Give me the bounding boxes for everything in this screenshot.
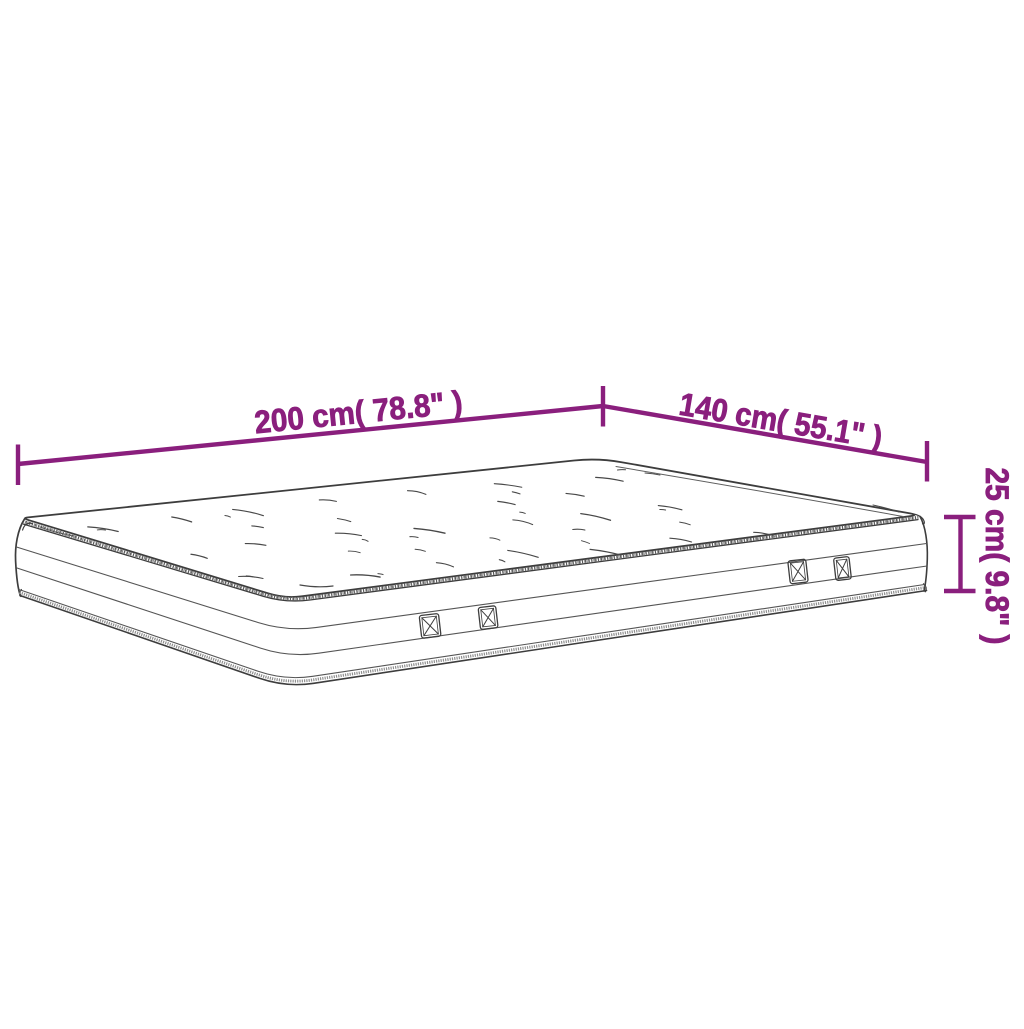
svg-text:25 cm( 9.8" ): 25 cm( 9.8" ) <box>979 468 1015 645</box>
